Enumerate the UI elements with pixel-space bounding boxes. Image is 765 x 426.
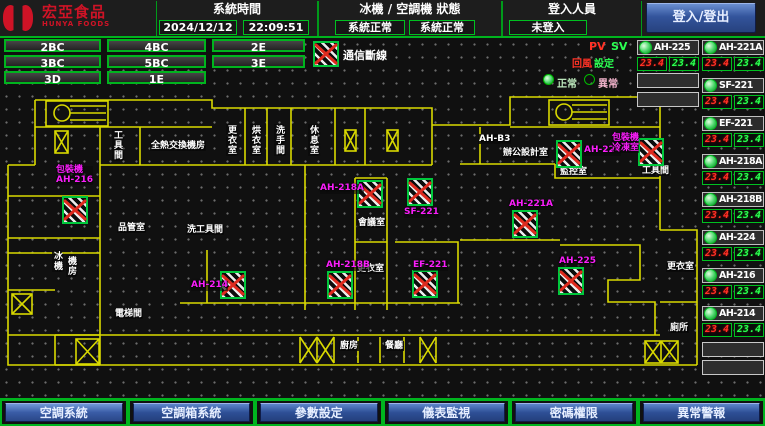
map-device-label-AH-225: AH-225 — [559, 257, 596, 267]
pv-value: 23.4 — [702, 247, 732, 261]
room-label: 冰機 — [52, 250, 62, 272]
map-device-label-AH-218B: AH-218B — [326, 261, 370, 271]
floor-button-3BC[interactable]: 3BC — [4, 55, 101, 68]
nav-slot: 儀表監視 — [383, 399, 511, 426]
sv-value: 23.4 — [734, 209, 764, 223]
room-label: 工具間 — [112, 129, 122, 161]
map-device-label-SF-221: SF-221 — [404, 208, 439, 218]
unit-cell-EF-221: EF-22123.423.4 — [702, 116, 764, 147]
room-label: AH-B3 — [478, 134, 511, 144]
sv-value: 23.4 — [734, 323, 764, 337]
abnormal-legend-label: 異常 — [598, 75, 618, 90]
status-led-icon — [639, 41, 652, 54]
pv-value: 23.4 — [637, 57, 667, 71]
sv-value: 23.4 — [734, 133, 764, 147]
pv-legend-label: PV — [589, 40, 606, 53]
unit-name: AH-224 — [719, 232, 755, 243]
status-led-icon — [704, 117, 717, 130]
map-device-icon-冷凍室[interactable] — [638, 138, 664, 166]
unit-cell-AH-221A: AH-221A23.423.4 — [702, 40, 764, 71]
room-label: 更衣室 — [226, 124, 236, 156]
empty-unit-slot — [702, 360, 764, 375]
room-label: 監控室 — [559, 167, 588, 177]
map-device-label-AH-214: AH-214 — [191, 281, 228, 291]
unit-values: 23.423.4 — [637, 57, 699, 71]
nav-slot: 參數設定 — [255, 399, 383, 426]
room-label: 洗手間 — [274, 124, 284, 156]
empty-unit-slot — [637, 92, 699, 107]
nav-button-異常警報[interactable]: 異常警報 — [643, 403, 761, 422]
floor-select-grid: 2BC4BC2E3BC5BC3E3D1E — [4, 39, 305, 84]
unit-name: AH-218A — [719, 156, 762, 167]
map-device-icon-AH-216[interactable] — [62, 196, 88, 224]
floor-button-3D[interactable]: 3D — [4, 71, 101, 84]
system-time-label: 系統時間 — [157, 1, 317, 18]
unit-values: 23.423.4 — [702, 247, 764, 261]
login-logout-button[interactable]: 登入/登出 — [646, 3, 756, 33]
map-device-label-AH-218A: AH-218A — [320, 184, 364, 194]
room-label: 烘衣室 — [250, 124, 260, 156]
floor-button-2E[interactable]: 2E — [212, 39, 305, 52]
unit-cell-SF-221: SF-22123.423.4 — [702, 78, 764, 109]
unit-values: 23.423.4 — [702, 95, 764, 109]
map-device-label-AH-221A: AH-221A — [509, 200, 553, 210]
pv-value: 23.4 — [702, 285, 732, 299]
unit-name: EF-221 — [719, 118, 752, 129]
room-label: 會議室 — [357, 218, 386, 228]
status-led-icon — [704, 41, 717, 54]
machine-status-label: 冰機 / 空調機 狀態 — [319, 1, 501, 18]
brand-name-en: HUNYA FOODS — [42, 18, 110, 30]
empty-unit-slot — [702, 342, 764, 357]
unit-name: AH-214 — [719, 308, 755, 319]
unit-cell-AH-218A: AH-218A23.423.4 — [702, 154, 764, 185]
pv-value: 23.4 — [702, 133, 732, 147]
unit-values: 23.423.4 — [702, 133, 764, 147]
room-label: 洗工具間 — [186, 225, 224, 235]
setpoint-label: 設定 — [594, 55, 614, 70]
unit-header-EF-221[interactable]: EF-221 — [702, 116, 764, 131]
unit-cell-AH-214: AH-21423.423.4 — [702, 306, 764, 337]
room-label: 休息室 — [308, 124, 318, 156]
sv-value: 23.4 — [669, 57, 699, 71]
status-led-icon — [704, 155, 717, 168]
normal-led-icon — [543, 74, 554, 85]
sv-value: 23.4 — [734, 285, 764, 299]
room-label: 餐廳 — [384, 341, 404, 351]
unit-name: AH-216 — [719, 270, 755, 281]
system-date-value: 2024/12/12 — [159, 20, 237, 35]
login-user-label: 登入人員 — [503, 1, 641, 18]
map-device-label-AH-216: 包裝機AH-216 — [56, 166, 93, 185]
unit-header-AH-221A[interactable]: AH-221A — [702, 40, 764, 55]
unit-values: 23.423.4 — [702, 285, 764, 299]
empty-unit-slot — [637, 73, 699, 88]
room-label: 品管室 — [117, 223, 146, 233]
nav-button-參數設定[interactable]: 參數設定 — [260, 403, 378, 422]
bottom-nav-bar: 空調系統空調箱系統參數設定儀表監視密碼權限異常警報 — [0, 398, 765, 426]
ac-status-value: 系統正常 — [409, 20, 475, 35]
unit-cell-AH-224: AH-22423.423.4 — [702, 230, 764, 261]
brand-name: 宏亞食品 — [42, 6, 110, 18]
unit-cell-AH-225: AH-22523.423.4 — [637, 40, 699, 71]
unit-name: AH-218B — [719, 194, 762, 205]
unit-header-AH-214[interactable]: AH-214 — [702, 306, 764, 321]
unit-header-AH-218A[interactable]: AH-218A — [702, 154, 764, 169]
unit-values: 23.423.4 — [702, 57, 764, 71]
unit-name: SF-221 — [719, 80, 753, 91]
room-label: 機房 — [66, 255, 76, 277]
status-led-icon — [704, 79, 717, 92]
pv-value: 23.4 — [702, 209, 732, 223]
room-label: 工具間 — [641, 166, 670, 176]
floor-button-4BC[interactable]: 4BC — [107, 39, 206, 52]
unit-name: AH-221A — [719, 42, 762, 53]
map-device-icon-AH-225[interactable] — [558, 267, 584, 295]
unit-header-AH-218B[interactable]: AH-218B — [702, 192, 764, 207]
floor-button-2BC[interactable]: 2BC — [4, 39, 101, 52]
nav-slot: 異常警報 — [638, 399, 765, 426]
unit-cell-AH-218B: AH-218B23.423.4 — [702, 192, 764, 223]
floor-button-5BC[interactable]: 5BC — [107, 55, 206, 68]
status-led-icon — [704, 193, 717, 206]
machine-status-section: 冰機 / 空調機 狀態 系統正常 系統正常 — [318, 1, 502, 36]
nav-button-密碼權限[interactable]: 密碼權限 — [515, 403, 633, 422]
room-label: 廚房 — [339, 341, 359, 351]
nav-slot: 空調箱系統 — [128, 399, 256, 426]
status-led-icon — [704, 231, 717, 244]
map-device-icon-AH-218B[interactable] — [327, 271, 353, 299]
chiller-status-value: 系統正常 — [335, 20, 405, 35]
unit-values: 23.423.4 — [702, 323, 764, 337]
map-device-icon-AH-221A[interactable] — [512, 210, 538, 238]
nav-button-空調箱系統[interactable]: 空調箱系統 — [133, 403, 251, 422]
return-air-label: 回風 — [572, 55, 592, 70]
nav-button-空調系統[interactable]: 空調系統 — [5, 403, 123, 422]
abnormal-led-icon — [584, 74, 595, 85]
pv-value: 23.4 — [702, 323, 732, 337]
unit-values: 23.423.4 — [702, 209, 764, 223]
comm-loss-label: 通信斷線 — [343, 47, 387, 63]
sv-value: 23.4 — [734, 171, 764, 185]
system-time-section: 系統時間 2024/12/12 22:09:51 — [156, 1, 318, 36]
map-device-label-EF-221: EF-221 — [413, 261, 448, 271]
map-device-label-冷凍室: 包裝機冷凍室 — [612, 134, 639, 153]
hvac-scada-screen: 工具間全熱交換機房更衣室烘衣室洗手間休息室AH-B3辦公設計室監控室工具間會議室… — [0, 0, 765, 426]
sv-value: 23.4 — [734, 57, 764, 71]
status-led-icon — [704, 269, 717, 282]
company-logo: 宏亞食品 HUNYA FOODS — [2, 1, 154, 35]
login-user-section: 登入人員 未登入 — [502, 1, 642, 36]
status-led-icon — [704, 307, 717, 320]
map-device-icon-SF-221[interactable] — [407, 178, 433, 206]
system-clock-value: 22:09:51 — [243, 20, 309, 35]
header-bar: 宏亞食品 HUNYA FOODS 系統時間 2024/12/12 22:09:5… — [0, 0, 765, 38]
floor-button-1E[interactable]: 1E — [107, 71, 206, 84]
room-label: 全熱交換機房 — [150, 141, 206, 151]
unit-header-AH-225[interactable]: AH-225 — [637, 40, 699, 55]
login-user-value: 未登入 — [509, 20, 587, 35]
nav-slot: 密碼權限 — [510, 399, 638, 426]
unit-header-SF-221[interactable]: SF-221 — [702, 78, 764, 93]
unit-values: 23.423.4 — [702, 171, 764, 185]
normal-legend-label: 正常 — [557, 75, 577, 90]
map-device-icon-AH-224[interactable] — [556, 140, 582, 168]
room-label: 更衣室 — [666, 262, 695, 272]
unit-name: AH-225 — [654, 42, 690, 53]
unit-cell-AH-216: AH-21623.423.4 — [702, 268, 764, 299]
room-label: 廁所 — [669, 323, 689, 333]
nav-slot: 空調系統 — [0, 399, 128, 426]
sv-legend-label: SV — [611, 40, 627, 53]
unit-header-AH-216[interactable]: AH-216 — [702, 268, 764, 283]
pv-value: 23.4 — [702, 171, 732, 185]
room-label: 電梯間 — [114, 309, 143, 319]
nav-button-儀表監視[interactable]: 儀表監視 — [388, 403, 506, 422]
pv-value: 23.4 — [702, 57, 732, 71]
logo-icon — [2, 3, 36, 33]
sv-value: 23.4 — [734, 95, 764, 109]
room-label: 辦公設計室 — [502, 148, 549, 158]
unit-header-AH-224[interactable]: AH-224 — [702, 230, 764, 245]
floor-button-3E[interactable]: 3E — [212, 55, 305, 68]
pv-value: 23.4 — [702, 95, 732, 109]
sv-value: 23.4 — [734, 247, 764, 261]
map-device-icon-EF-221[interactable] — [412, 270, 438, 298]
